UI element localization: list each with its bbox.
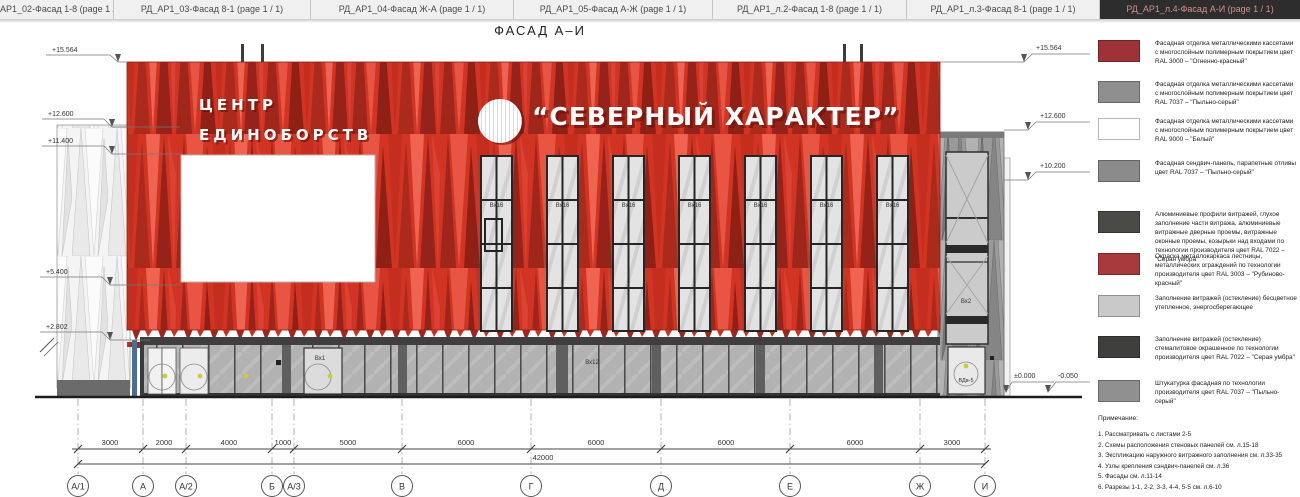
building-sign-line2: ЕДИНОБОРСТВ xyxy=(199,126,372,144)
left-wing xyxy=(40,125,130,396)
upper-window: Вх16 xyxy=(876,155,909,332)
legend-swatch-sandwich xyxy=(1098,160,1140,182)
sheet-title: ФАСАД А–И xyxy=(0,23,1080,38)
document-tabbar: АР1_02-Фасад 1-8 (page 1 / 1) РД_АР1_03-… xyxy=(0,0,1300,19)
right-stub-wall xyxy=(1004,158,1010,396)
legend-item: Заполнение витражей (остекление) стемали… xyxy=(1098,336,1297,363)
window-label: Вх16 xyxy=(548,203,577,209)
elevation-mark: +12.600 xyxy=(1040,113,1066,120)
dim-value: 2000 xyxy=(156,438,173,447)
dim-value: 3000 xyxy=(944,438,961,447)
tower-window-label: Вх2 xyxy=(961,299,972,305)
notes-block: Примечание: 1. Рассматривать с листами 2… xyxy=(1098,415,1298,494)
dim-value: 6000 xyxy=(847,438,864,447)
elevation-mark: -0.050 xyxy=(1058,373,1078,380)
tab-fasad-8-1[interactable]: РД_АР1_03-Фасад 8-1 (page 1 / 1) xyxy=(114,0,311,19)
notes-heading: Примечание: xyxy=(1098,415,1298,422)
dim-value: 6000 xyxy=(588,438,605,447)
elevation-mark: +15.564 xyxy=(1036,45,1062,52)
note-item: 6. Разрезы 1-1, 2-2, 3-3, 4-4, 5-5 см. л… xyxy=(1098,484,1298,492)
media-screen xyxy=(181,155,375,282)
window-label: Вх16 xyxy=(746,203,775,209)
legend-item: Фасадная отделка металлическими кассетам… xyxy=(1098,81,1297,108)
legend-item: Фасадная отделка металлическими кассетам… xyxy=(1098,40,1297,67)
legend-swatch-ral3000 xyxy=(1098,40,1140,62)
tab-fasad-a-zh[interactable]: РД_АР1_05-Фасад А-Ж (page 1 / 1) xyxy=(514,0,713,19)
dim-value: 3000 xyxy=(102,438,119,447)
tab-fasad-l3-8-1[interactable]: РД_АР1_л.3-Фасад 8-1 (page 1 / 1) xyxy=(907,0,1100,19)
dim-value: 5000 xyxy=(340,438,357,447)
brand-logo-circle xyxy=(478,99,522,143)
elevation-mark: +5.400 xyxy=(46,269,68,276)
upper-window: Вх16 xyxy=(678,155,711,332)
tab-fasad-l2-1-8[interactable]: РД_АР1_л.2-Фасад 1-8 (page 1 / 1) xyxy=(713,0,907,19)
door-closer-dot xyxy=(244,374,249,379)
legend-text: Штукатурка фасадная по технологии произв… xyxy=(1155,380,1297,407)
legend-swatch-ral9000 xyxy=(1098,118,1140,140)
legend-swatch-ral3003 xyxy=(1098,253,1140,275)
elevation-mark: +10.200 xyxy=(1040,163,1066,170)
legend-item: Фасадная отделка металлическими кассетам… xyxy=(1098,118,1297,145)
note-item: 3. Экспликацию наружного витражного запо… xyxy=(1098,452,1298,460)
upper-window: Вх16 xyxy=(744,155,777,332)
axis-bubble-label: Б xyxy=(269,482,275,492)
legend-item: Штукатурка фасадная по технологии произв… xyxy=(1098,380,1297,407)
legend-swatch-plaster xyxy=(1098,380,1140,402)
tab-fasad-zh-a[interactable]: РД_АР1_04-Фасад Ж-А (page 1 / 1) xyxy=(311,0,514,19)
dim-total-value: 42000 xyxy=(533,453,554,462)
legend-text: Фасадная отделка металлическими кассетам… xyxy=(1155,118,1297,145)
storefront-label: Вх12 xyxy=(585,360,599,366)
legend-swatch-glazing-clear xyxy=(1098,295,1140,317)
dimension-line-total: 42000 xyxy=(74,453,989,468)
door-closer-dot xyxy=(328,374,333,379)
axis-bubbles: А/1 А А/2 Б А/3 В Г Д Е Ж И xyxy=(68,476,996,497)
legend-item: Фасадная сендвич-панель, парапетные отли… xyxy=(1098,160,1297,182)
elevation-mark: ±0.000 xyxy=(1014,373,1035,380)
dim-value: 4000 xyxy=(221,438,238,447)
legend-item: Заполнение витражей (остекление) бесцвет… xyxy=(1098,295,1297,317)
axis-bubble-label: Е xyxy=(787,482,793,492)
elevation-mark: +12.600 xyxy=(48,111,74,118)
axis-bubble-label: А/1 xyxy=(71,482,85,492)
legend-text: Окраска металлокаркаса лестницы, металли… xyxy=(1155,253,1297,289)
window-label: Вх16 xyxy=(680,203,709,209)
note-item: 2. Схемы расположения стеновых панелей с… xyxy=(1098,442,1298,450)
legend-text: Заполнение витражей (остекление) стемали… xyxy=(1155,336,1297,363)
legend-swatch-ral7037 xyxy=(1098,81,1140,103)
axis-bubble-label: А xyxy=(140,482,146,492)
axis-bubble-label: И xyxy=(982,482,988,492)
tab-fasad-l4-a-i-active[interactable]: РД_АР1_л.4-Фасад А-И (page 1 / 1) xyxy=(1100,0,1300,19)
legend-text: Фасадная сендвич-панель, парапетные отли… xyxy=(1155,160,1297,182)
tabbar-shadow xyxy=(0,19,1300,23)
axis-bubble-label: А/3 xyxy=(287,482,301,492)
axis-bubble-label: А/2 xyxy=(179,482,193,492)
upper-window: Вх16 xyxy=(612,155,645,332)
storefront: Вх1 Вх12 xyxy=(132,337,940,396)
tower-door xyxy=(948,347,985,394)
door-closer-dot xyxy=(163,374,168,379)
door-closer-dot xyxy=(964,364,969,369)
window-label: Вх16 xyxy=(614,203,643,209)
axis-bubble-label: В xyxy=(399,482,405,492)
entrance-door xyxy=(180,348,208,394)
elevation-mark: +2.802 xyxy=(46,324,68,331)
legend-text: Фасадная отделка металлическими кассетам… xyxy=(1155,81,1297,108)
legend-item: Окраска металлокаркаса лестницы, металли… xyxy=(1098,253,1297,289)
upper-window: Вх16 xyxy=(480,155,513,332)
axis-bubble-label: Д xyxy=(658,482,664,492)
entry-label: Вх1 xyxy=(315,356,326,362)
note-item: 4. Узлы крепления сэндвич-панелей см. л.… xyxy=(1098,463,1298,471)
axis-extension-lines xyxy=(78,399,985,474)
upper-window: Вх16 xyxy=(810,155,843,332)
legend-text: Фасадная отделка металлическими кассетам… xyxy=(1155,40,1297,67)
note-item: 5. Фасады см. л.11-14 xyxy=(1098,473,1298,481)
tab-fasad-1-8[interactable]: АР1_02-Фасад 1-8 (page 1 / 1) xyxy=(0,0,114,19)
drainpipe xyxy=(132,340,137,396)
facade-drawing-canvas[interactable]: Вх2 ВДв-5 xyxy=(0,0,1090,497)
legend-swatch-glazing-tinted xyxy=(1098,336,1140,358)
right-tower: Вх2 ВДв-5 xyxy=(938,132,1004,396)
window-label: Вх16 xyxy=(482,203,511,209)
dim-value: 6000 xyxy=(718,438,735,447)
elevation-mark: +11.400 xyxy=(48,138,73,145)
building-sign-line1: ЦЕНТР xyxy=(199,96,277,114)
window-label: Вх16 xyxy=(812,203,841,209)
dim-value: 6000 xyxy=(458,438,475,447)
tower-door-label: ВДв-5 xyxy=(958,378,973,384)
window-vent-panel xyxy=(484,218,503,252)
window-label: Вх16 xyxy=(878,203,907,209)
dimension-line-segments: 3000 2000 4000 1000 5000 6000 6000 6000 … xyxy=(72,438,991,453)
building-banner-text: “СЕВЕРНЫЙ ХАРАКТЕР” xyxy=(532,102,899,131)
axis-bubble-label: Ж xyxy=(916,482,925,492)
upper-window: Вх16 xyxy=(546,155,579,332)
legend-swatch-ral7022 xyxy=(1098,211,1140,233)
note-item: 1. Рассматривать с листами 2-5 xyxy=(1098,431,1298,439)
elevation-mark: +15.564 xyxy=(52,47,78,54)
door-closer-dot xyxy=(198,374,203,379)
dim-value: 1000 xyxy=(275,438,292,447)
axis-bubble-label: Г xyxy=(529,482,534,492)
legend-text: Заполнение витражей (остекление) бесцвет… xyxy=(1155,295,1297,317)
